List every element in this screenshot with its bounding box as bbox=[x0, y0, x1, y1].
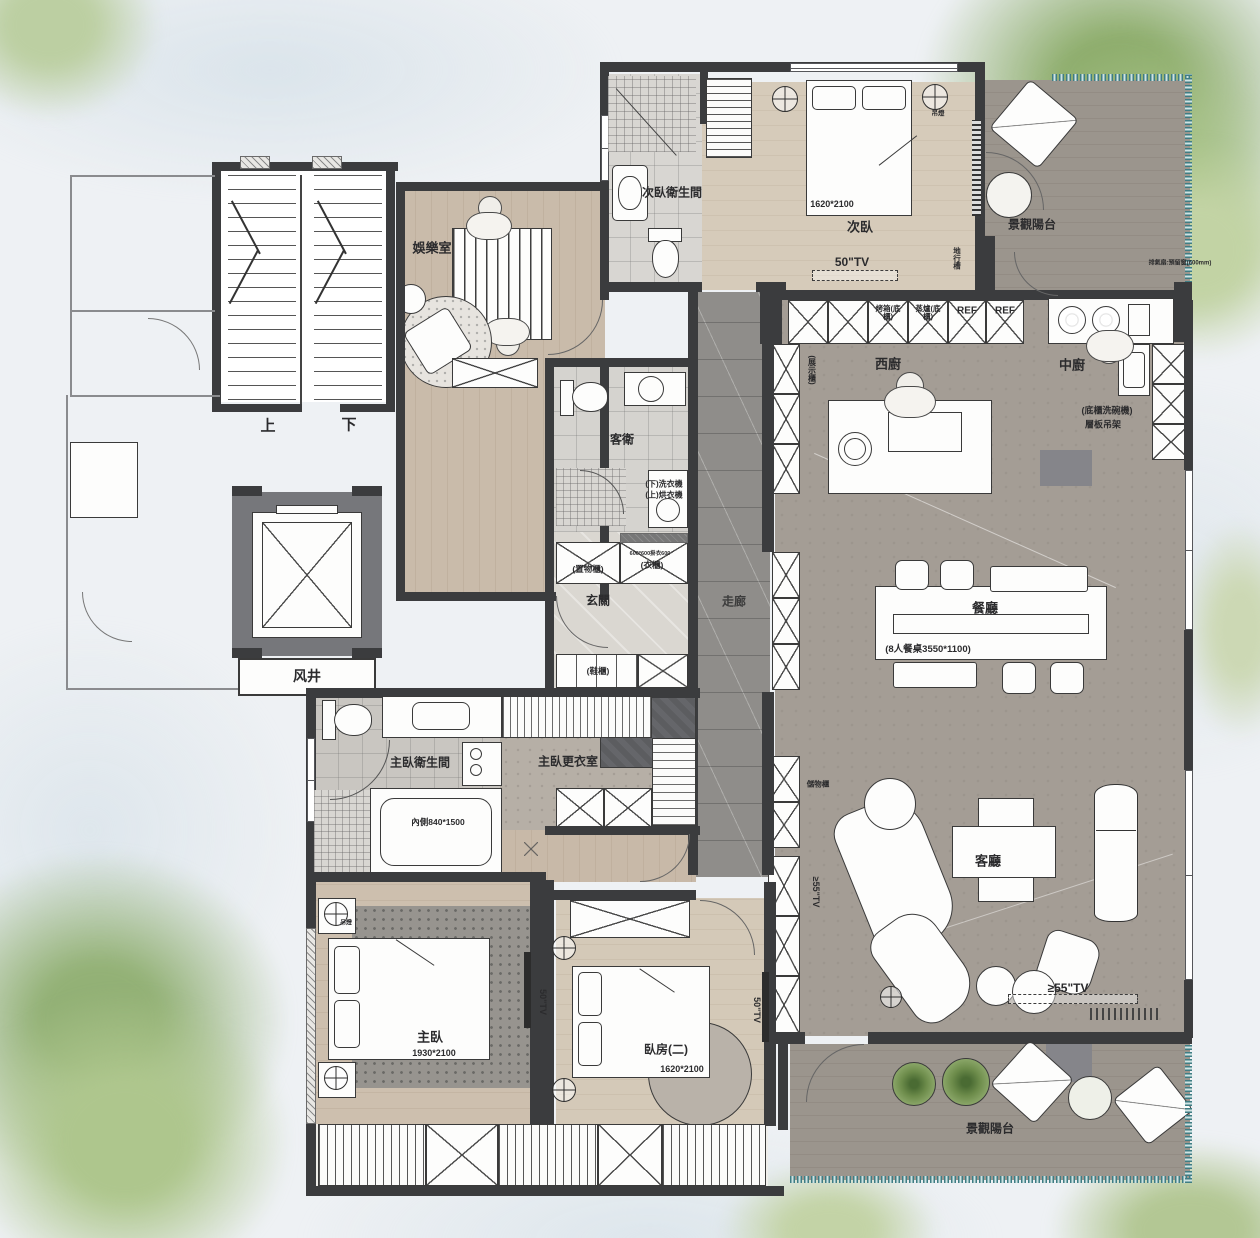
wardrobe-cabinet-label: (衣櫃) bbox=[641, 559, 664, 571]
room-label-west-kitchen: 西廚 bbox=[875, 354, 901, 373]
display-cabinet bbox=[772, 344, 800, 394]
room-label-living: 客廳 bbox=[975, 851, 1001, 870]
floor-corridor bbox=[695, 292, 770, 877]
sink-basin bbox=[618, 176, 642, 210]
person-figure bbox=[466, 212, 512, 240]
window bbox=[1185, 470, 1193, 630]
sofa-pillow bbox=[864, 778, 916, 830]
bath-cabinet bbox=[462, 742, 502, 786]
wardrobe-cabinet bbox=[598, 1124, 662, 1186]
wall bbox=[600, 282, 702, 292]
door-arc bbox=[148, 318, 200, 370]
wall bbox=[762, 292, 774, 552]
shower-area bbox=[314, 790, 376, 874]
dining-bench bbox=[893, 662, 977, 688]
bed-dim-label: 1620*2100 bbox=[660, 1064, 704, 1074]
cabinet bbox=[828, 300, 868, 344]
shelf-note: 層板吊架 bbox=[1085, 418, 1121, 431]
lobby-wall bbox=[70, 395, 220, 397]
window-hatch bbox=[240, 156, 270, 169]
wall bbox=[386, 162, 395, 412]
pillow bbox=[578, 1022, 602, 1066]
toilet-bowl bbox=[334, 704, 372, 736]
room-label-guest-bath: 客衛 bbox=[610, 431, 634, 448]
window bbox=[790, 63, 958, 72]
floor-plan: 上 下 风井 娛樂室 次臥衛生間 次臥 1620*2100 50"TV 吊燈 地… bbox=[0, 0, 1260, 1238]
dining-chair bbox=[1050, 662, 1084, 694]
wall bbox=[232, 486, 262, 496]
window-hatch bbox=[312, 156, 342, 169]
wardrobe bbox=[498, 1124, 598, 1186]
wall bbox=[985, 236, 995, 298]
room-label-foyer: 玄關 bbox=[586, 592, 610, 609]
wall bbox=[212, 162, 221, 412]
pillow bbox=[334, 946, 360, 994]
cabinet-knob bbox=[470, 748, 482, 760]
window bbox=[1185, 770, 1193, 980]
pillow bbox=[334, 1000, 360, 1048]
cabinet bbox=[772, 598, 800, 644]
room-label-corridor: 走廊 bbox=[722, 593, 746, 610]
wall bbox=[554, 890, 696, 900]
cabinet bbox=[638, 654, 688, 688]
storage-cabinet-label: (置物櫃) bbox=[572, 563, 603, 575]
closet-shelves bbox=[652, 738, 696, 826]
room-label-bedroom2: 臥房(二) bbox=[644, 1041, 688, 1058]
dining-note: (8人餐桌3550*1100) bbox=[885, 641, 971, 655]
display-cabinet-label: (展示櫃) bbox=[807, 355, 818, 384]
tv-label-vertical: ≥55"TV bbox=[811, 877, 821, 908]
pillow bbox=[862, 86, 906, 110]
sink-basin bbox=[638, 376, 664, 402]
potted-plant bbox=[942, 1058, 990, 1106]
vent-note: 排氣扇:預留窗(600mm) bbox=[1149, 258, 1212, 267]
wall bbox=[545, 358, 695, 367]
wall bbox=[306, 872, 546, 882]
washer-label: (下)洗衣機 bbox=[645, 479, 682, 490]
wall bbox=[545, 358, 554, 690]
dining-chair bbox=[1002, 662, 1036, 694]
bed-dim-label: 1930*2100 bbox=[412, 1048, 456, 1058]
bathtub-inner bbox=[380, 798, 492, 866]
toilet-bowl bbox=[652, 240, 679, 278]
washer-drum bbox=[656, 498, 680, 522]
closet-cabinet bbox=[604, 788, 652, 828]
island-cooktop bbox=[888, 412, 962, 452]
room-label-master-closet: 主臥更衣室 bbox=[538, 753, 598, 770]
lobby-wall bbox=[70, 175, 215, 177]
wall bbox=[212, 404, 302, 412]
wall bbox=[775, 1032, 805, 1044]
hob bbox=[1128, 304, 1150, 336]
round-table bbox=[986, 172, 1032, 218]
room-label-secondary-bath: 次臥衛生間 bbox=[642, 184, 702, 201]
cabinet-knob bbox=[470, 764, 482, 776]
wardrobe-dim-label: 600*600掛衣600 bbox=[630, 549, 671, 557]
potted-plant bbox=[892, 1062, 936, 1106]
cabinet bbox=[772, 644, 800, 690]
room-label-balcony-top: 景觀陽台 bbox=[1008, 216, 1056, 233]
balcony-railing bbox=[790, 1176, 1192, 1183]
floor-lamp-symbol bbox=[880, 986, 902, 1008]
wall bbox=[340, 404, 395, 412]
tv-console bbox=[812, 270, 898, 281]
console-cabinet bbox=[452, 358, 538, 388]
room-label-master: 主臥 bbox=[417, 1027, 443, 1046]
round-table bbox=[1068, 1076, 1112, 1120]
tv-55 bbox=[1008, 994, 1138, 1004]
steamer-label: 蒸爐(底櫃) bbox=[911, 305, 945, 322]
wall bbox=[1184, 980, 1193, 1038]
stair-divider bbox=[300, 175, 302, 405]
room-label-dining: 餐廳 bbox=[972, 598, 998, 617]
lobby-wall bbox=[70, 310, 215, 312]
balcony-railing bbox=[1185, 1044, 1192, 1183]
tv-wall-nib bbox=[524, 952, 531, 1028]
balcony-railing bbox=[1052, 74, 1192, 81]
display-cabinet bbox=[772, 444, 800, 494]
column bbox=[1040, 450, 1092, 486]
pillow bbox=[812, 86, 856, 110]
tub-dim-label: 內側840*1500 bbox=[411, 816, 464, 828]
pendant-label: 吊燈 bbox=[340, 918, 352, 927]
tv-label-vertical: 50"TV bbox=[752, 997, 762, 1023]
wardrobe bbox=[662, 1124, 766, 1186]
room-label-balcony-bottom: 景觀陽台 bbox=[966, 1120, 1014, 1137]
wall bbox=[306, 1186, 784, 1196]
elevator-door bbox=[276, 505, 338, 514]
closet-cabinet bbox=[556, 788, 604, 828]
sculpture-cabinet-line bbox=[1096, 830, 1136, 831]
lobby-closet bbox=[70, 442, 138, 518]
shower-area bbox=[608, 76, 696, 152]
tv-speaker bbox=[1090, 1008, 1160, 1020]
lobby-wall bbox=[66, 395, 68, 690]
lobby-wall bbox=[66, 688, 238, 690]
wall bbox=[762, 692, 774, 875]
dryer-label: (上)烘衣機 bbox=[645, 490, 682, 501]
display-cabinet bbox=[772, 394, 800, 444]
closet-cabinet bbox=[570, 900, 690, 938]
wall bbox=[232, 648, 262, 658]
window-hatch bbox=[306, 928, 316, 1124]
wok-burner bbox=[1058, 306, 1086, 334]
dining-chair bbox=[940, 560, 974, 590]
room-label-master-bath: 主臥衛生間 bbox=[390, 754, 450, 771]
pillow bbox=[578, 972, 602, 1016]
coffee-table bbox=[952, 826, 1056, 878]
floor-mark bbox=[524, 842, 538, 856]
ceiling-fan-symbol bbox=[772, 86, 798, 112]
wall bbox=[396, 592, 556, 601]
roller-blind-box bbox=[972, 120, 981, 216]
wall bbox=[396, 182, 608, 191]
wall bbox=[352, 486, 382, 496]
tv-label-vertical: 50"TV bbox=[538, 989, 548, 1015]
lobby-wall bbox=[70, 175, 72, 397]
wall bbox=[396, 182, 405, 600]
person-figure bbox=[884, 386, 936, 418]
wall bbox=[1184, 630, 1193, 770]
stairs-up-label: 上 bbox=[260, 415, 275, 436]
dishwasher-note: (底櫃洗碗機) bbox=[1082, 404, 1133, 417]
room-label-entertainment: 娛樂室 bbox=[412, 238, 451, 257]
dining-bench bbox=[990, 566, 1088, 592]
elevator-symbol bbox=[262, 522, 352, 628]
fridge-label: REF bbox=[957, 306, 977, 317]
wall bbox=[778, 1044, 788, 1130]
fridge-label: REF bbox=[995, 306, 1015, 317]
ceiling-light-symbol bbox=[552, 936, 576, 960]
tv-label: 50"TV bbox=[835, 255, 869, 269]
stairs-down-label: 下 bbox=[341, 414, 356, 435]
shoe-cabinet-label: (鞋櫃) bbox=[587, 665, 610, 677]
toilet-bowl bbox=[572, 382, 608, 412]
cabinet-hatch bbox=[620, 533, 688, 543]
pendant-label: 吊燈 bbox=[932, 107, 945, 117]
ceiling-light-symbol bbox=[552, 1078, 576, 1102]
oven-label: 烤箱(底櫃) bbox=[871, 305, 905, 322]
cabinet bbox=[772, 552, 800, 598]
wall bbox=[1184, 300, 1193, 470]
sculpture-cabinet bbox=[1094, 784, 1138, 922]
island-sink-inner bbox=[844, 438, 866, 460]
sink-basin bbox=[412, 702, 470, 730]
closet-hanging-rail bbox=[502, 696, 652, 738]
dining-chair bbox=[895, 560, 929, 590]
room-label-secondary-bedroom: 次臥 bbox=[847, 217, 873, 236]
storage-cabinet-label: 儲物櫃 bbox=[807, 779, 830, 790]
cabinet bbox=[788, 300, 828, 344]
tv-label: ≥55"TV bbox=[1048, 981, 1089, 995]
wardrobe-cabinet bbox=[426, 1124, 498, 1186]
bed-dim-label: 1620*2100 bbox=[810, 199, 854, 209]
person-figure bbox=[1086, 330, 1134, 362]
pendant-light-symbol bbox=[324, 1066, 348, 1090]
air-shaft-label: 风井 bbox=[293, 666, 321, 686]
wardrobe bbox=[318, 1124, 426, 1186]
table-runner bbox=[893, 614, 1089, 634]
room-label-chinese-kitchen: 中廚 bbox=[1059, 355, 1085, 374]
tv-wall-nib bbox=[762, 972, 769, 1042]
blind-box-label: 地行槽 bbox=[952, 247, 963, 270]
wall bbox=[352, 648, 382, 658]
wardrobe bbox=[706, 78, 752, 158]
